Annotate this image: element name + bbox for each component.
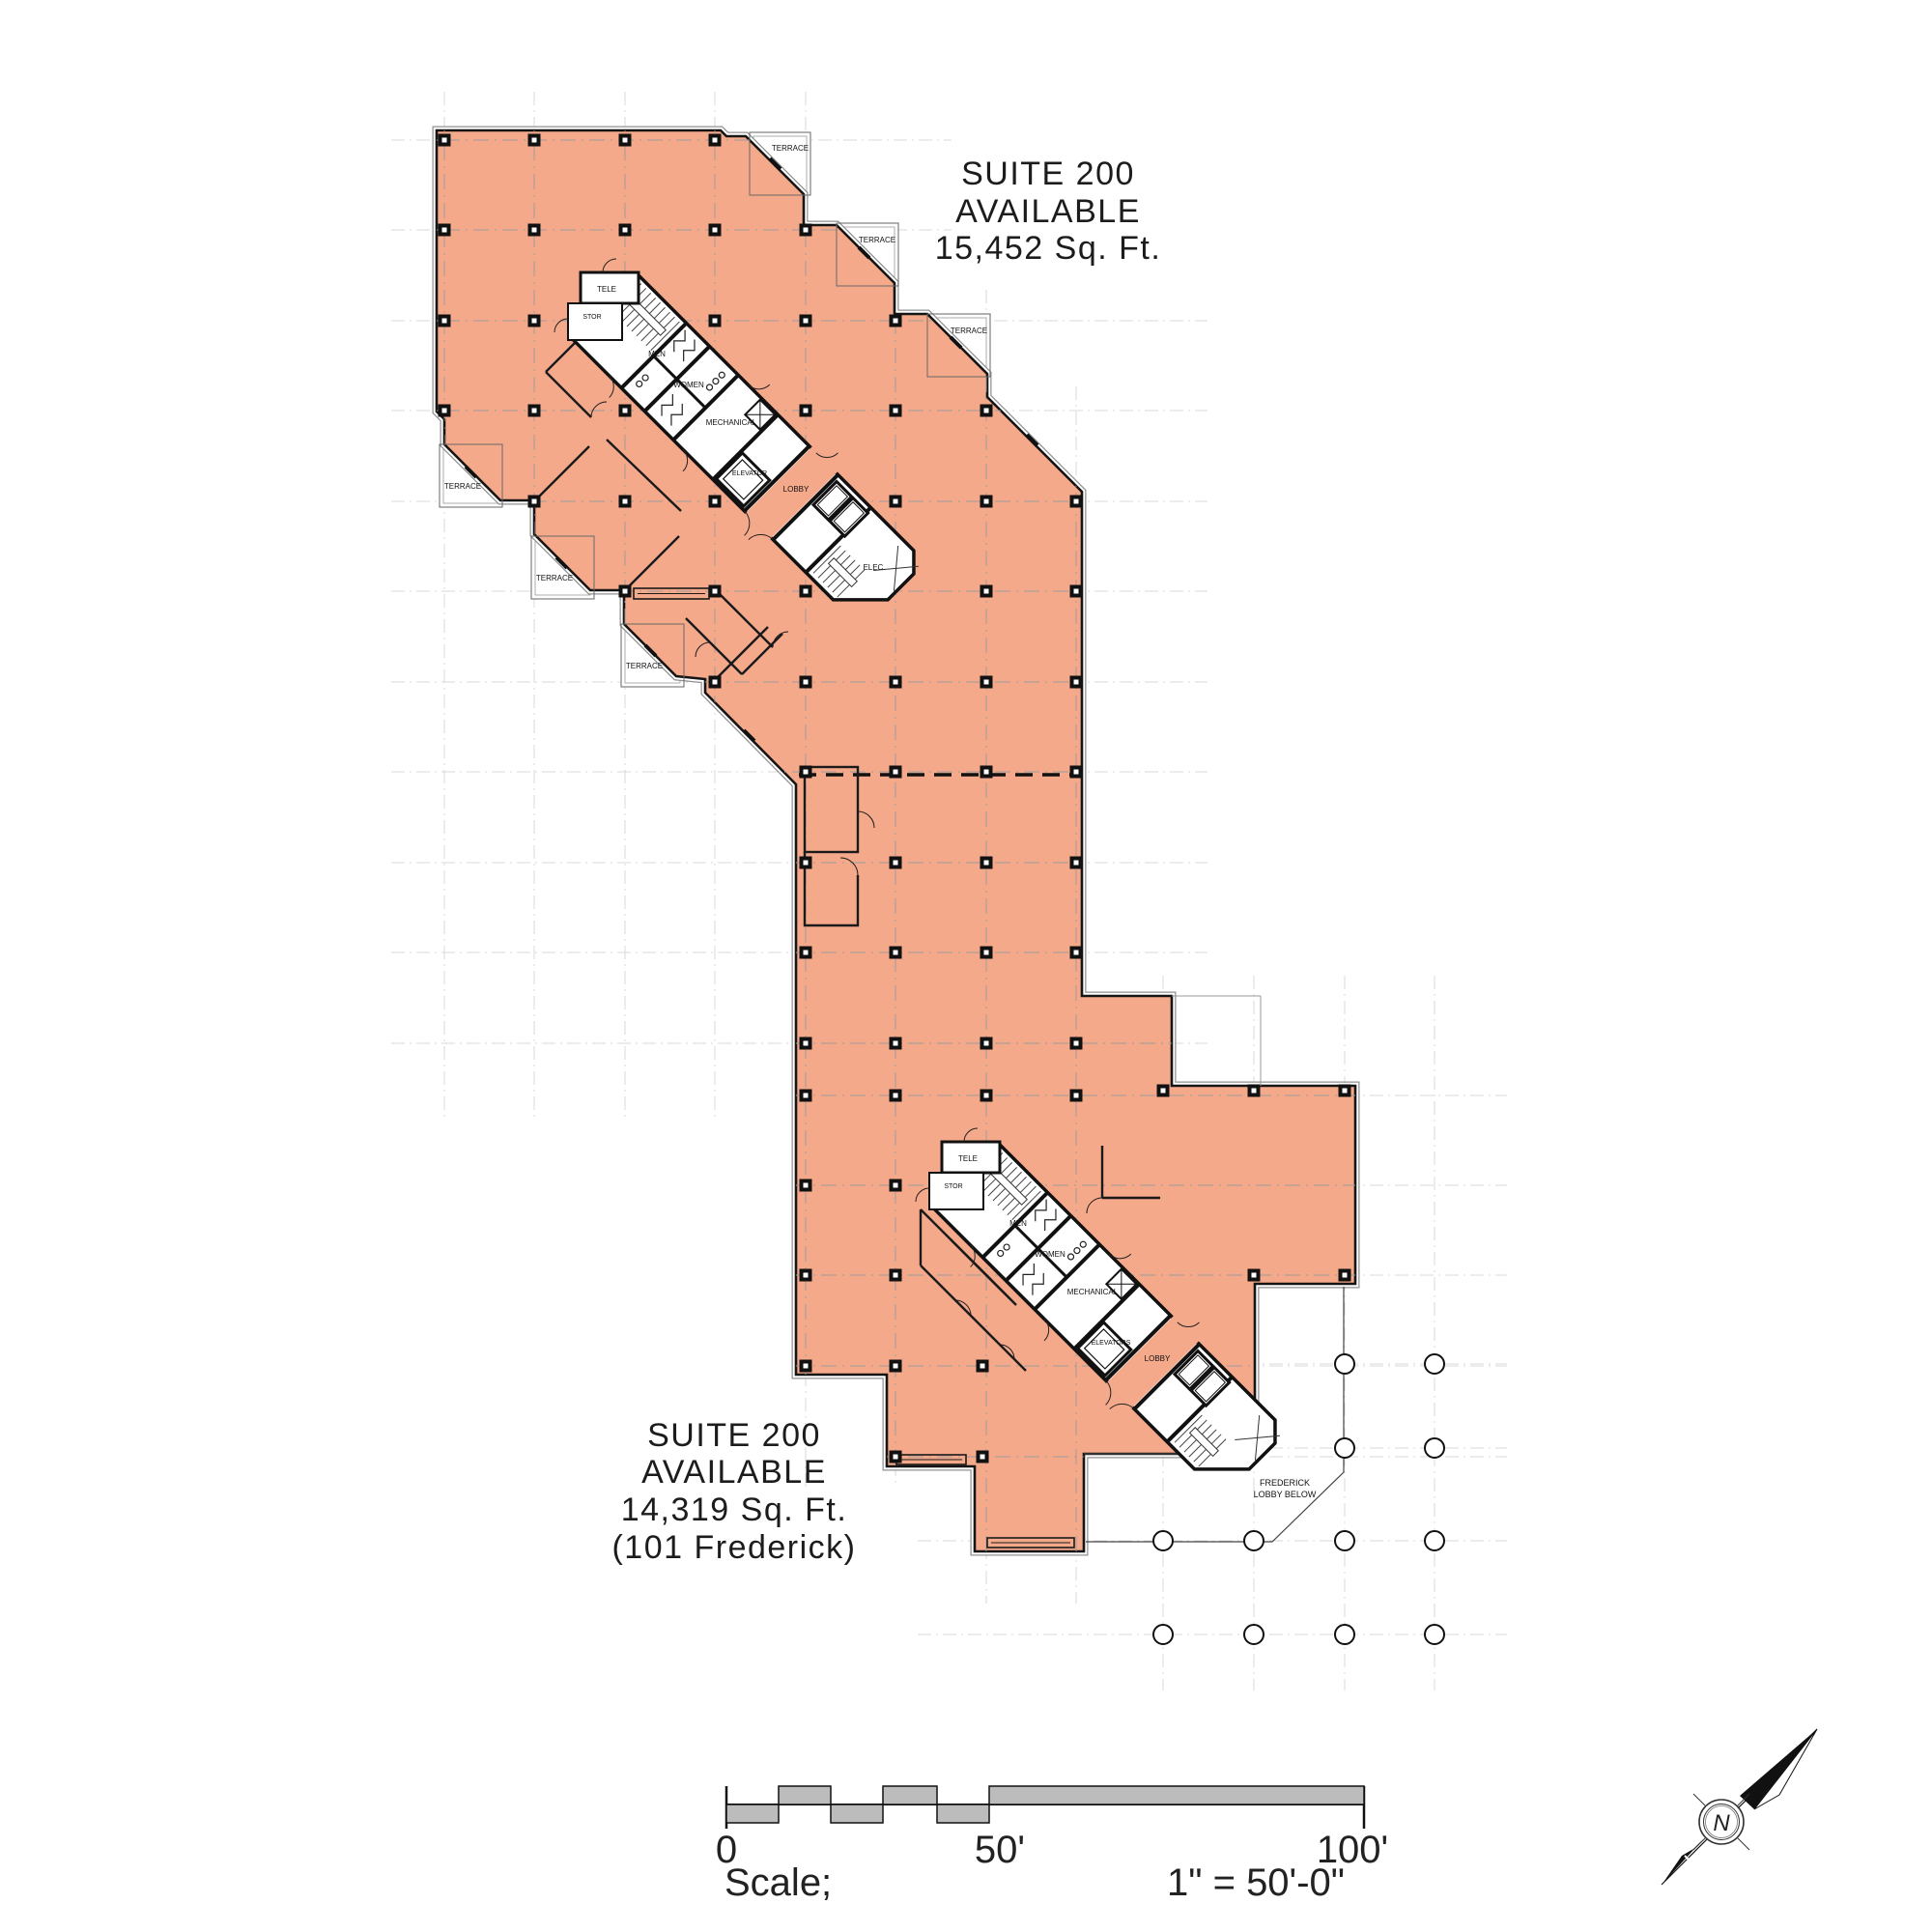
svg-text:LOBBY: LOBBY [783,485,810,494]
svg-text:MEN: MEN [1009,1219,1027,1228]
svg-text:WOMEN: WOMEN [673,381,704,389]
svg-text:MECHANICAL: MECHANICAL [706,418,757,427]
svg-text:ELEVATOR: ELEVATOR [732,470,767,477]
svg-text:ELEC.: ELEC. [863,563,885,572]
svg-text:WOMEN: WOMEN [1035,1250,1065,1259]
svg-text:15,452 Sq. Ft.: 15,452 Sq. Ft. [935,230,1162,267]
svg-text:AVAILABLE: AVAILABLE [641,1454,827,1491]
svg-text:ELEVATORS: ELEVATORS [1092,1340,1131,1347]
svg-text:SUITE 200: SUITE 200 [961,156,1135,192]
svg-text:TELE: TELE [958,1154,978,1163]
svg-text:1" = 50'-0": 1" = 50'-0" [1167,1861,1345,1904]
svg-text:LOBBY BELOW: LOBBY BELOW [1254,1490,1317,1499]
svg-text:Scale;: Scale; [724,1861,832,1904]
svg-text:TERRACE: TERRACE [772,144,809,153]
svg-text:STOR: STOR [944,1183,962,1190]
svg-text:14,319 Sq. Ft.: 14,319 Sq. Ft. [621,1492,848,1528]
svg-text:TERRACE: TERRACE [536,574,573,582]
svg-text:FREDERICK: FREDERICK [1260,1478,1310,1488]
svg-text:TERRACE: TERRACE [626,662,663,670]
svg-text:TERRACE: TERRACE [444,482,481,491]
svg-text:MECHANICAL: MECHANICAL [1067,1288,1119,1296]
svg-text:TELE: TELE [597,285,616,294]
svg-text:TERRACE: TERRACE [951,327,987,335]
svg-text:AVAILABLE: AVAILABLE [955,193,1141,230]
svg-text:N: N [1713,1810,1730,1836]
svg-text:SUITE 200: SUITE 200 [647,1417,821,1454]
svg-text:LOBBY: LOBBY [1145,1354,1171,1363]
svg-text:(101 Frederick): (101 Frederick) [611,1529,856,1566]
svg-text:50': 50' [975,1829,1025,1871]
svg-text:STOR: STOR [582,314,601,321]
svg-text:TERRACE: TERRACE [859,236,895,244]
svg-text:MEN: MEN [648,350,666,358]
